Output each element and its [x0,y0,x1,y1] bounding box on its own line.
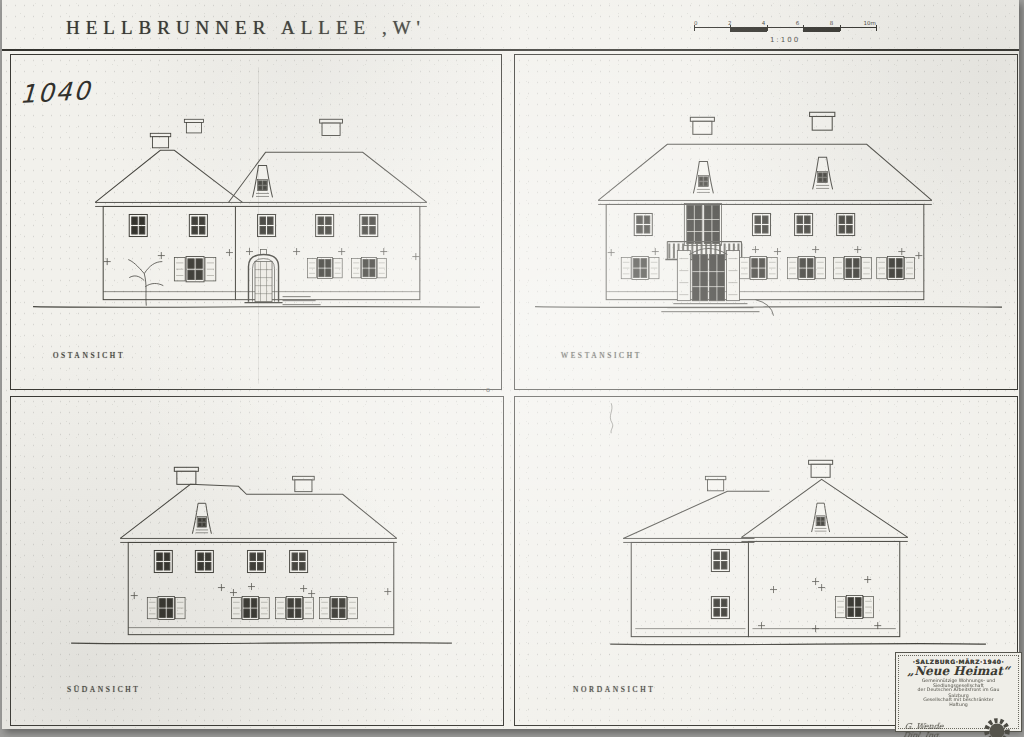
scale-tick-labels: 0 2 4 6 8 10m [694,20,876,27]
scale-bar-graphic [694,27,876,34]
roof [623,479,908,542]
entry-steps [283,297,321,305]
suedansicht-elevation-drawing [11,397,503,725]
scale-bar: 0 2 4 6 8 10m 1:100 [694,20,876,44]
facade [631,541,900,636]
panel-ostansicht: OSTANSICHT [10,54,502,390]
chimney-icon [705,460,832,491]
panel-westansicht: WESTANSICHT [514,54,1018,390]
upper-windows [129,214,378,236]
ground-line [71,643,452,644]
dormer-icon [252,165,272,197]
stray-pen-mark [610,403,612,433]
entrance-door [244,250,282,303]
scale-tick: 8 [830,20,834,27]
panel-suedansicht: SÜDANSICHT [10,396,504,726]
lower-windows [711,596,873,619]
westansicht-elevation-drawing [515,55,1017,389]
stamp-body-text: Gemeinnützige Wohnungs- und Siedlungsges… [914,678,1002,707]
roof [120,484,397,542]
tree [128,260,163,306]
caption-nordansicht: NORDANSICHT [573,685,655,694]
chimney-icon [690,112,834,134]
upper-windows [154,550,307,572]
ground-line [610,644,986,645]
entry-steps [661,300,773,316]
caption-suedansicht: SÜDANSICHT [67,685,141,694]
chimney-icon [174,467,314,491]
upper-windows [711,549,729,571]
caption-ostansicht: OSTANSICHT [53,351,125,360]
balcony-door [684,203,721,245]
scale-ratio: 1:100 [694,36,876,44]
drawing-sheet: HELLBRUNNER ALLEE ,W' 1040 0 2 4 6 8 10m… [2,0,1019,729]
sheet-title: HELLBRUNNER ALLEE ,W' [66,17,426,39]
dormer-icon [812,503,830,532]
roof [598,144,932,204]
signature: G. Wende Dipl. Ing. [902,722,944,737]
dormer-icon [192,503,211,533]
gear-icon [981,715,1013,737]
lower-windows [174,257,386,282]
lower-windows [621,257,914,280]
scale-tick: 10m [864,20,876,27]
stamp-frame: ·SALZBURG·MÄRZ·1940· „Neue Heimat“ Gemei… [898,655,1019,729]
company-stamp: ·SALZBURG·MÄRZ·1940· „Neue Heimat“ Gemei… [895,652,1022,732]
entrance-door [677,249,739,301]
lower-windows [147,597,357,620]
scale-tick: 6 [796,20,800,27]
scale-tick: 4 [762,20,766,27]
stamp-company-name: „Neue Heimat“ [902,665,1015,678]
chimney-icon [150,119,342,148]
dormer-icon [693,157,832,193]
ostansicht-elevation-drawing [11,55,501,389]
ground-line [33,307,480,308]
caption-westansicht: WESTANSICHT [561,351,642,360]
stamp-signature-row: G. Wende Dipl. Ing. [902,715,1015,737]
upper-windows [634,213,854,235]
stray-mark: o [486,385,490,394]
title-rule [2,49,1019,51]
